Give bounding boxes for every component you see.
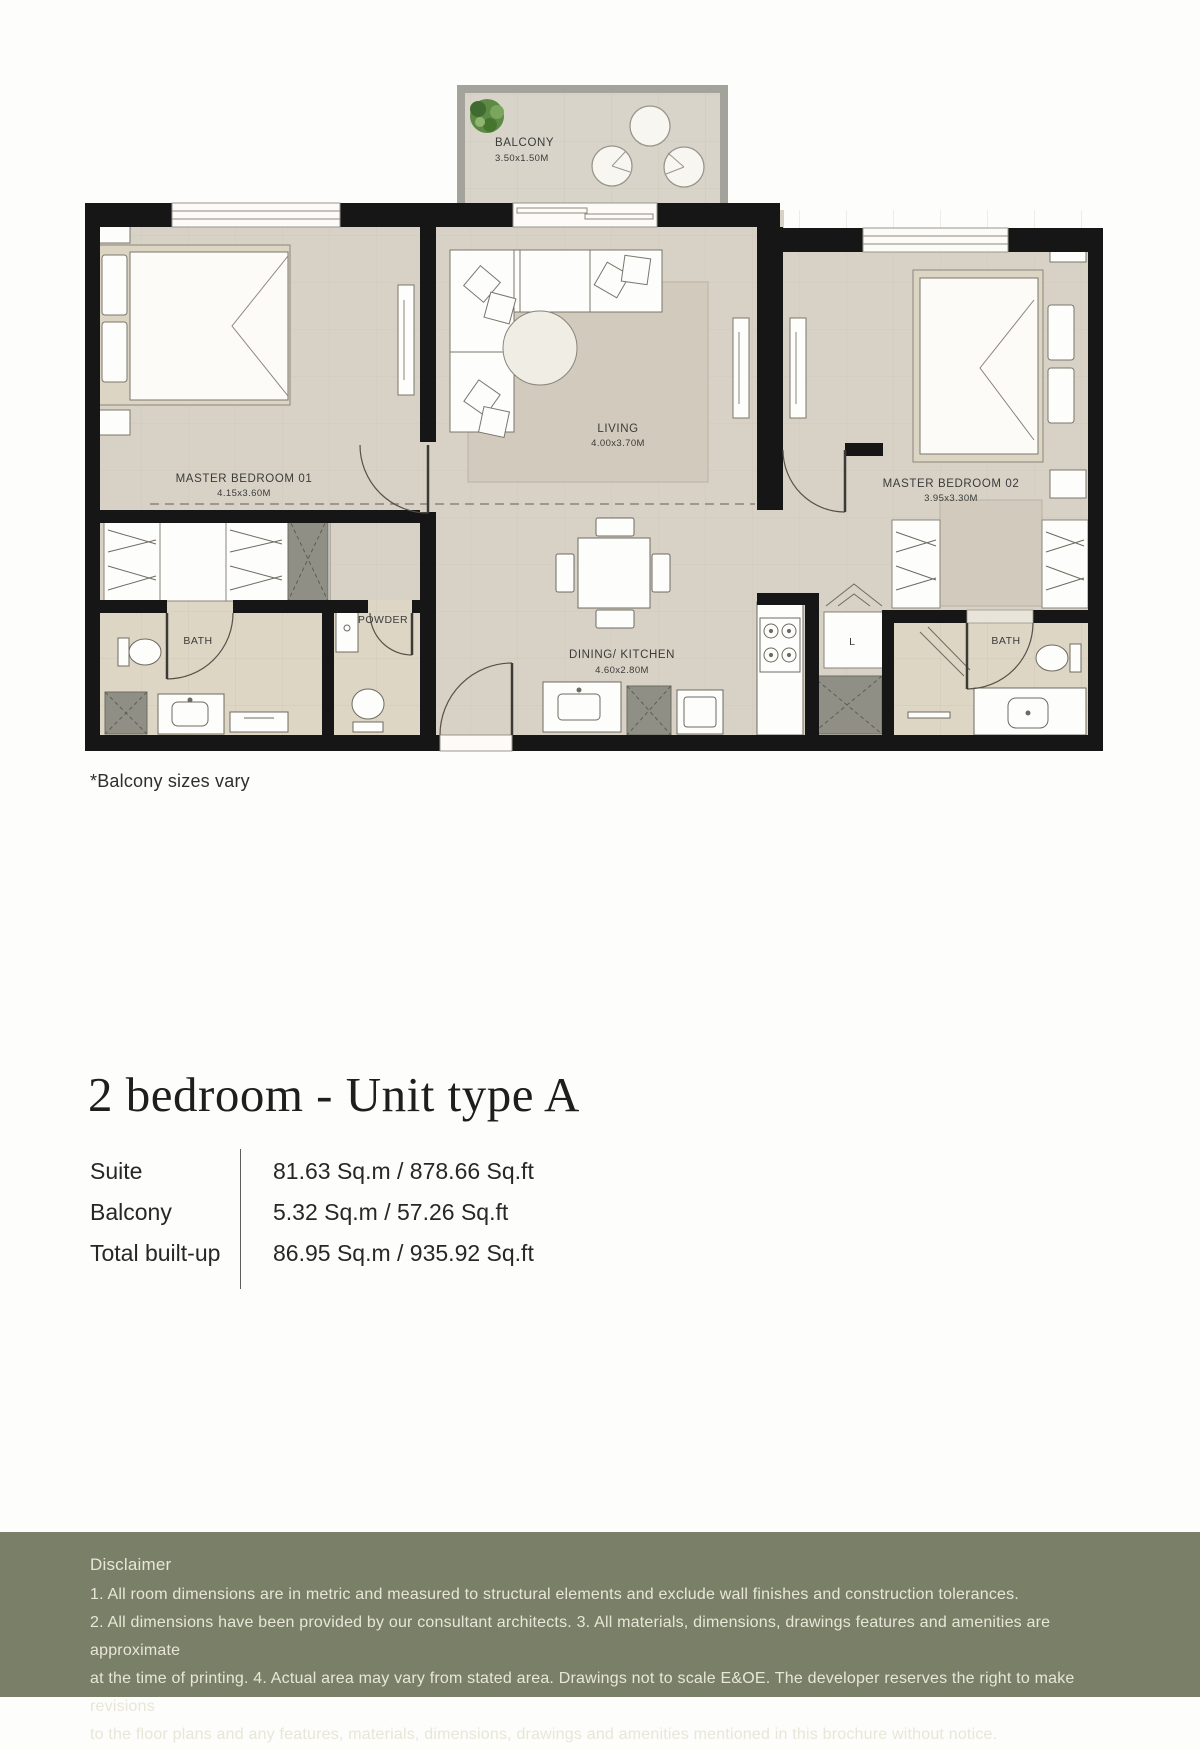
tv-console [733,318,749,418]
entry-threshold [440,735,512,751]
toilet-icon [118,638,161,666]
area-value: 86.95 Sq.m / 935.92 Sq.ft [273,1240,534,1267]
dining-chair [596,518,634,536]
dresser [398,285,414,395]
brochure-page: BALCONY 3.50x1.50M [0,0,1200,1697]
dining-chair [556,554,574,592]
room-dims-master-bedroom-01: 4.15x3.60M [217,488,271,499]
floor-plan-drawing: BALCONY 3.50x1.50M [0,0,1200,770]
coffee-table [503,311,577,385]
area-table: Suite 81.63 Sq.m / 878.66 Sq.ft Balcony … [90,1151,610,1274]
page-title: 2 bedroom - Unit type A [88,1066,580,1123]
kitchen-counter [757,602,803,735]
cabinet [230,712,288,732]
area-label: Balcony [90,1199,240,1226]
floor-plan: BALCONY 3.50x1.50M [0,0,1200,770]
disclaimer-line: to the floor plans and any features, mat… [90,1721,1110,1749]
door-threshold [967,610,1033,623]
room-label-living: LIVING [597,423,638,435]
balcony-note: *Balcony sizes vary [90,771,250,792]
bed-blanket [920,278,1038,454]
bedroom2-rug [940,500,1042,606]
bed-blanket [130,252,288,400]
table-row: Total built-up 86.95 Sq.m / 935.92 Sq.ft [90,1233,610,1274]
area-label: Suite [90,1158,240,1185]
area-label: Total built-up [90,1240,240,1267]
balcony-label: BALCONY [495,137,554,149]
room-dims-master-bedroom-02: 3.95x3.30M [924,493,978,504]
dining-table [578,538,650,608]
balcony: BALCONY 3.50x1.50M [461,85,724,206]
area-value: 81.63 Sq.m / 878.66 Sq.ft [273,1158,534,1185]
disclaimer-section: Disclaimer 1. All room dimensions are in… [0,1532,1200,1697]
room-label-powder: POWDER [358,614,408,626]
towel-rail [908,712,950,718]
room-label-bath-1: BATH [183,635,212,647]
pillow [1048,368,1074,423]
balcony-chair [664,147,704,187]
disclaimer-content: Disclaimer 1. All room dimensions are in… [0,1532,1200,1749]
room-dims-living: 4.00x3.70M [591,438,645,449]
dresser [790,318,806,418]
balcony-table [630,106,670,146]
disclaimer-line: 1. All room dimensions are in metric and… [90,1581,1110,1609]
table-row: Balcony 5.32 Sq.m / 57.26 Sq.ft [90,1192,610,1233]
room-label-master-bedroom-01: MASTER BEDROOM 01 [176,473,313,485]
disclaimer-line: at the time of printing. 4. Actual area … [90,1665,1110,1721]
room-label-master-bedroom-02: MASTER BEDROOM 02 [883,478,1020,490]
room-label-bath-2: BATH [991,635,1020,647]
plant-icon [470,99,504,133]
wardrobe [1042,520,1088,608]
area-value: 5.32 Sq.m / 57.26 Sq.ft [273,1199,508,1226]
nightstand [98,410,130,435]
room-label-laundry: L [849,636,855,648]
dining-chair [652,554,670,592]
laundry-closet [824,612,886,668]
nightstand [1050,470,1086,498]
window [863,228,1008,252]
closet-strip [104,517,330,601]
toilet-icon [1036,644,1081,672]
window [172,203,340,227]
disclaimer-heading: Disclaimer [90,1555,1110,1575]
wardrobe [892,520,940,608]
table-row: Suite 81.63 Sq.m / 878.66 Sq.ft [90,1151,610,1192]
sliding-door [513,203,657,227]
pillow [102,255,127,315]
balcony-dims: 3.50x1.50M [495,153,549,164]
pillow [1048,305,1074,360]
kitchen-counter [543,682,621,732]
disclaimer-line: 2. All dimensions have been provided by … [90,1609,1110,1665]
room-label-dining-kitchen: DINING/ KITCHEN [569,649,675,661]
room-dims-dining-kitchen: 4.60x2.80M [595,665,649,676]
table-divider [240,1149,241,1289]
pillow [102,322,127,382]
dining-chair [596,610,634,628]
balcony-chair [592,146,632,186]
toilet-icon [352,689,384,732]
